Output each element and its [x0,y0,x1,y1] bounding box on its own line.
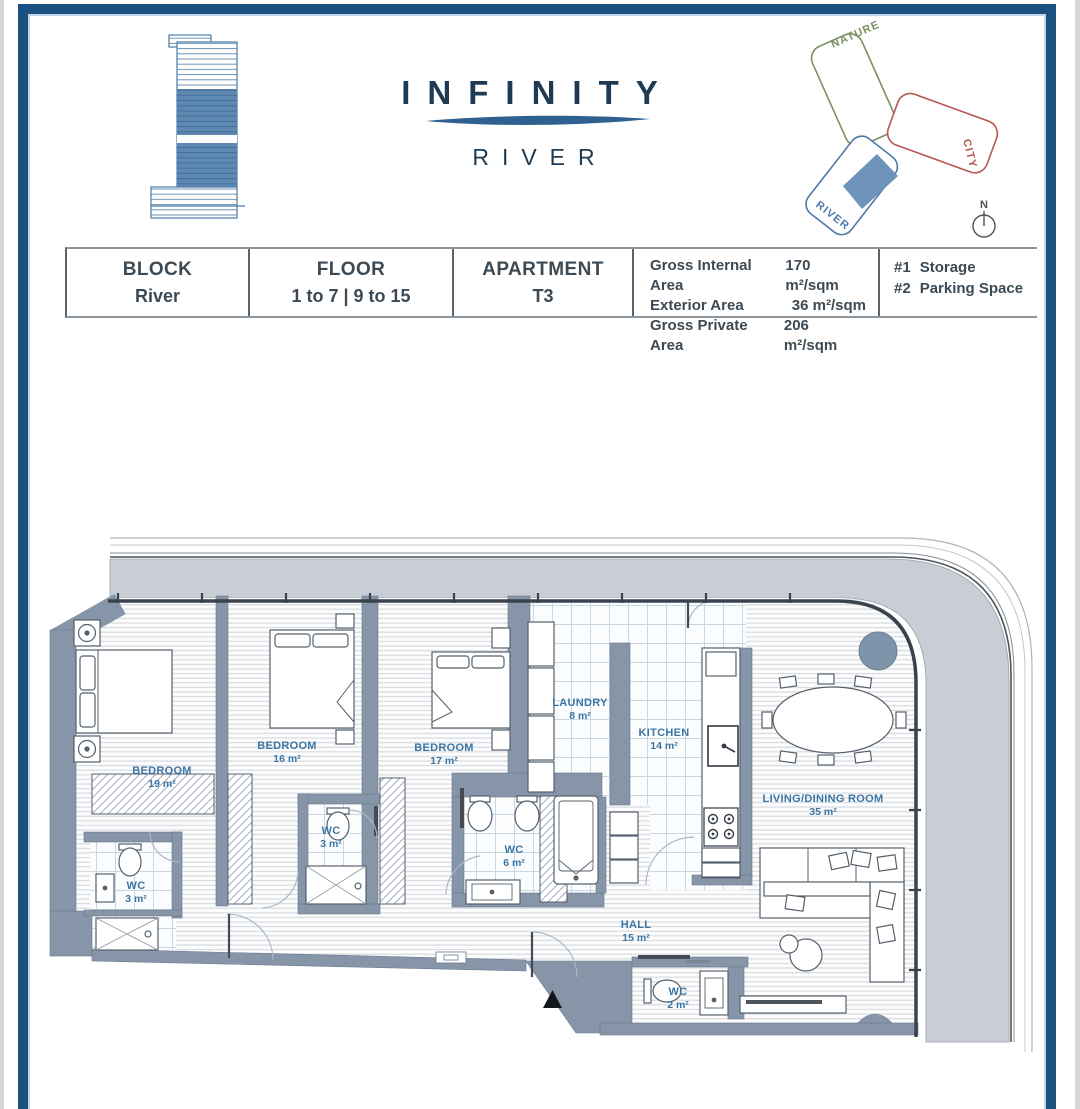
room-label: BEDROOM [414,742,474,754]
room-area: 8 m² [569,710,591,722]
extra-row: #2 Parking Space [894,279,1023,299]
extra-label: Storage [920,258,976,278]
room-area: 3 m² [125,893,147,905]
area-label: Gross Private Area [650,316,784,356]
wardrobe-bedroom17 [380,778,405,904]
cooktop [704,808,738,846]
room-label: KITCHEN [639,727,690,739]
area-label: Gross Internal Area [650,256,785,296]
tv [746,1000,822,1004]
area-value: 36 m²/sqm [792,296,866,316]
room-area: 3 m² [320,838,342,850]
tv-bench [740,996,846,1013]
extra-num: #2 [894,279,911,299]
brand-subtitle: RIVER [430,144,650,171]
site-footprint-diagram: NATURE CITY RIVER N [795,18,1025,243]
area-row: Gross Internal Area 170 m²/sqm [650,256,866,296]
room-label: LIVING/DINING ROOM [763,793,884,805]
wall-b16-b17 [362,596,378,906]
extra-row: #1 Storage [894,258,976,278]
shoe-cabinet [444,955,458,960]
floor-value: 1 to 7 | 9 to 15 [291,286,410,307]
area-label: Exterior Area [650,296,744,316]
wall-b19-b16 [216,596,228,906]
area-row: Gross Private Area 206 m²/sqm [650,316,866,356]
room-label: LAUNDRY [552,697,608,709]
brochure-page: INFINITY RIVER NATURE CITY RIVER N BLOCK… [0,0,1080,1109]
apartment-info-table: BLOCK River FLOOR 1 to 7 | 9 to 15 APART… [65,247,1037,318]
room-area: 19 m² [148,778,176,790]
floor-label: FLOOR [317,259,386,281]
dining-table [773,687,893,753]
room-label: WC [127,880,146,892]
area-value: 170 m²/sqm [785,256,866,296]
room-area: 15 m² [622,932,650,944]
toilet [468,801,492,831]
wing-city [884,90,1001,177]
wall-laundry-kitchen [610,643,630,805]
room-label: WC [669,986,688,998]
page-edge-left [0,0,4,1109]
brand-swoosh [424,114,652,128]
block-value: River [135,286,180,307]
room-area: 6 m² [503,857,525,869]
wardrobe-bedroom16 [228,774,252,904]
area-row: Exterior Area 36 m²/sqm [650,296,866,316]
extra-label: Parking Space [920,279,1023,299]
room-label: BEDROOM [132,765,192,777]
info-col-apartment: APARTMENT T3 [452,249,632,316]
room-area: 17 m² [430,755,458,767]
info-col-block: BLOCK River [67,249,248,316]
sliding-door [638,955,690,959]
extra-num: #1 [894,258,911,278]
nightstand [492,628,510,648]
wing-nature [807,30,900,151]
area-value: 206 m²/sqm [784,316,866,356]
nightstand [336,730,354,744]
wall-kitchen-living [740,648,752,878]
compass-north: N [973,199,995,237]
bidet [515,801,539,831]
toilet [119,848,141,876]
room-label: WC [322,825,341,837]
apartment-label: APARTMENT [482,259,603,281]
side-table [780,935,798,953]
floor-plan: BEDROOM 19 m² BEDROOM 16 m² BEDROOM 17 m… [40,530,1045,1070]
room-area: 35 m² [809,806,837,818]
room-label: HALL [621,919,652,931]
info-col-extras: #1 Storage #2 Parking Space [878,249,1037,316]
room-area: 14 m² [650,740,678,752]
block-label: BLOCK [123,259,193,281]
column [859,632,897,670]
wall-b17-laundry [508,596,530,796]
compass-n-label: N [980,199,988,211]
room-label: WC [505,844,524,856]
info-col-areas: Gross Internal Area 170 m²/sqm Exterior … [632,249,878,316]
brand-title: INFINITY [368,74,708,112]
room-label: BEDROOM [257,740,317,752]
apartment-value: T3 [532,286,553,307]
tower-logo [145,32,249,228]
page-edge-right [1075,0,1080,1109]
room-area: 2 m² [667,999,689,1011]
nightstand [492,730,510,750]
room-area: 16 m² [273,753,301,765]
tower-shape [151,35,245,218]
bedroom16-furniture [270,614,354,744]
nightstand [336,614,354,628]
info-col-floor: FLOOR 1 to 7 | 9 to 15 [248,249,452,316]
